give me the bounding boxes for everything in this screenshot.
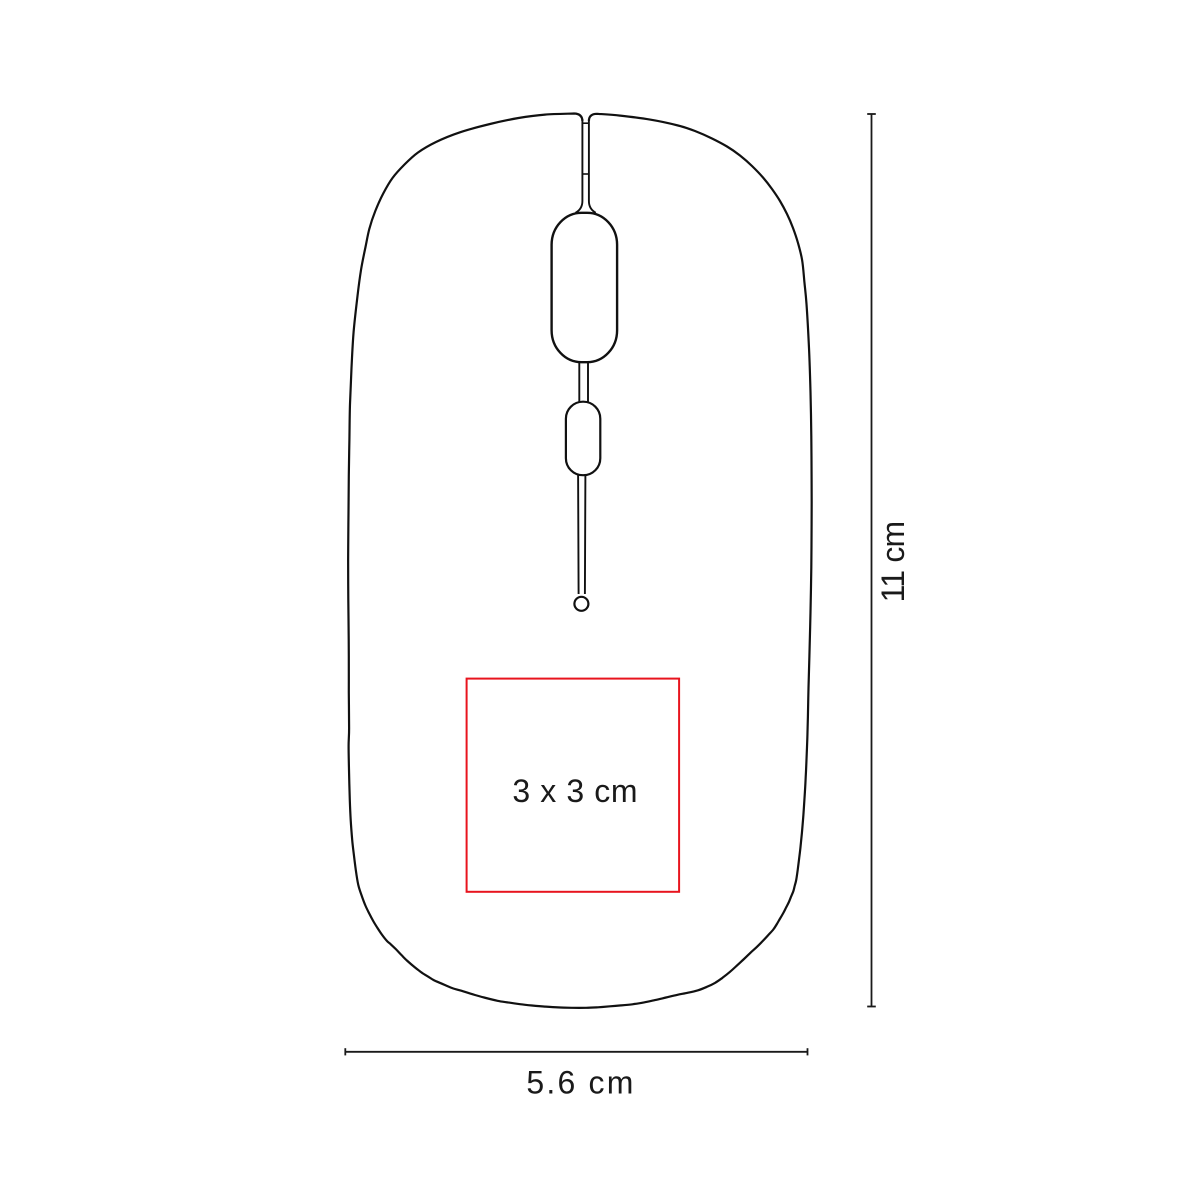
svg-text:11 cm: 11 cm	[875, 522, 911, 603]
svg-text:5.6 cm: 5.6 cm	[526, 1064, 635, 1100]
svg-text:3 x 3 cm: 3 x 3 cm	[512, 773, 638, 809]
